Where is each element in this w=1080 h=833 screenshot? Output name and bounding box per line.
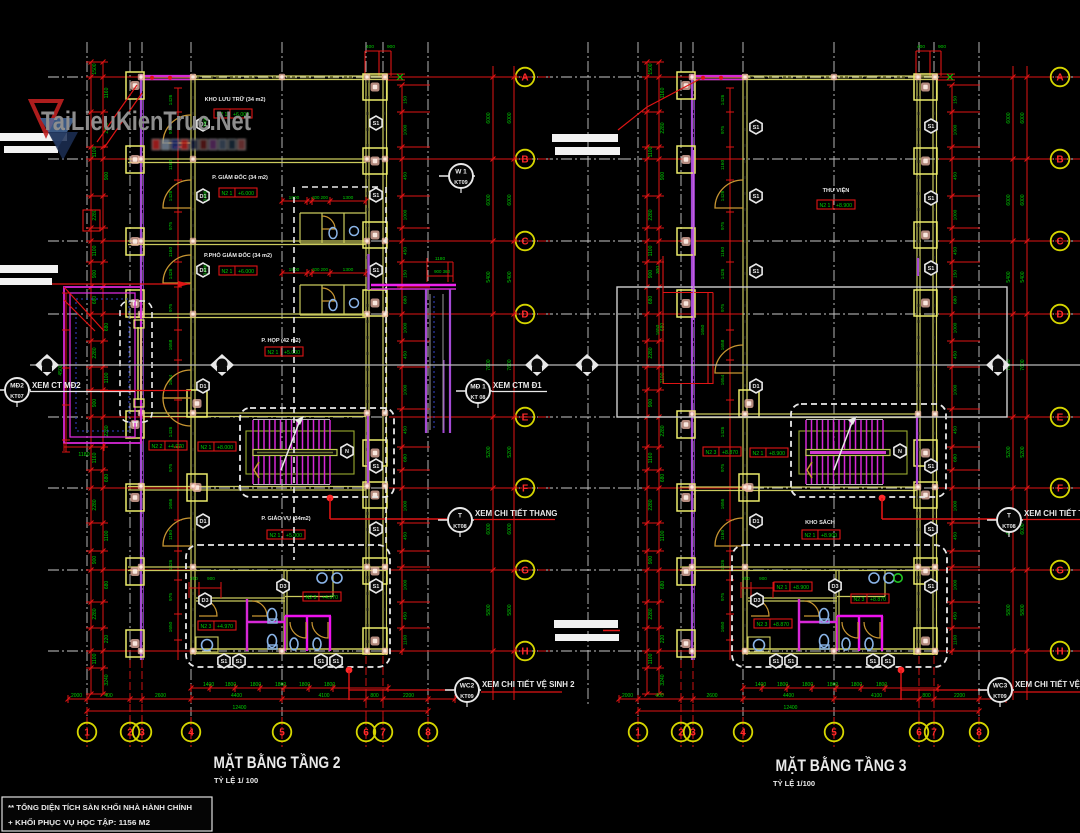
svg-text:1800: 1800 xyxy=(827,682,838,688)
svg-text:200 200: 200 200 xyxy=(312,267,328,272)
svg-text:N2 3: N2 3 xyxy=(200,624,211,630)
svg-text:450: 450 xyxy=(403,612,409,620)
svg-text:XEM CHI TIẾT VỆ S: XEM CHI TIẾT VỆ S xyxy=(1015,679,1080,689)
svg-text:W 1: W 1 xyxy=(455,169,467,176)
svg-text:680: 680 xyxy=(660,474,666,483)
svg-text:D1: D1 xyxy=(199,519,206,525)
svg-text:900: 900 xyxy=(660,172,666,181)
svg-text:S1: S1 xyxy=(373,527,380,533)
svg-text:KT09: KT09 xyxy=(993,694,1006,700)
svg-text:6: 6 xyxy=(916,727,922,738)
svg-text:S1: S1 xyxy=(221,659,228,665)
svg-text:1160: 1160 xyxy=(720,247,726,258)
svg-text:1426: 1426 xyxy=(168,559,174,570)
svg-text:3406: 3406 xyxy=(203,190,209,201)
svg-text:1656: 1656 xyxy=(720,498,726,509)
svg-text:KT07: KT07 xyxy=(10,394,23,400)
svg-text:D3: D3 xyxy=(753,598,760,604)
svg-text:2600: 2600 xyxy=(155,693,166,699)
svg-text:T: T xyxy=(1007,513,1011,520)
svg-text:S1: S1 xyxy=(928,266,935,272)
svg-text:3: 3 xyxy=(690,727,696,738)
svg-text:1426: 1426 xyxy=(168,190,174,201)
svg-text:975: 975 xyxy=(168,304,174,312)
svg-text:+6.000: +6.000 xyxy=(238,191,254,197)
svg-text:400: 400 xyxy=(366,44,374,50)
svg-text:680: 680 xyxy=(953,296,959,304)
svg-text:2280: 2280 xyxy=(92,347,98,358)
svg-text:S1: S1 xyxy=(236,659,243,665)
svg-text:N2 1: N2 1 xyxy=(221,269,232,275)
svg-text:1160: 1160 xyxy=(104,87,110,98)
svg-text:2280: 2280 xyxy=(648,608,654,619)
svg-text:800: 800 xyxy=(370,693,379,699)
svg-text:6000: 6000 xyxy=(507,112,513,123)
svg-text:D1: D1 xyxy=(199,384,206,390)
svg-text:1000: 1000 xyxy=(953,500,959,511)
svg-text:150: 150 xyxy=(403,270,409,278)
svg-text:+8.900: +8.900 xyxy=(821,533,837,539)
svg-text:3406: 3406 xyxy=(203,264,209,275)
svg-text:450: 450 xyxy=(403,351,409,359)
svg-text:S1: S1 xyxy=(373,464,380,470)
svg-text:900: 900 xyxy=(92,270,98,279)
svg-text:680: 680 xyxy=(403,296,409,304)
svg-text:B: B xyxy=(1056,154,1063,165)
svg-text:S1: S1 xyxy=(373,193,380,199)
svg-text:MẶT BẰNG TẦNG 3: MẶT BẰNG TẦNG 3 xyxy=(776,756,907,775)
svg-text:D3: D3 xyxy=(279,584,286,590)
svg-text:D: D xyxy=(1056,309,1063,320)
svg-text:7: 7 xyxy=(380,727,386,738)
svg-text:N: N xyxy=(345,449,349,455)
svg-text:5400: 5400 xyxy=(507,271,513,282)
svg-text:1160: 1160 xyxy=(168,247,174,258)
svg-text:TỶ LỆ 1/100: TỶ LỆ 1/100 xyxy=(773,779,815,788)
svg-text:4400: 4400 xyxy=(231,693,242,699)
svg-text:7: 7 xyxy=(931,727,937,738)
svg-text:450: 450 xyxy=(953,426,959,434)
svg-text:S1: S1 xyxy=(928,527,935,533)
svg-text:S1: S1 xyxy=(885,659,892,665)
svg-text:H: H xyxy=(1056,646,1063,657)
svg-text:975: 975 xyxy=(168,464,174,472)
svg-text:1650: 1650 xyxy=(720,621,726,632)
svg-text:1100: 1100 xyxy=(953,635,959,646)
svg-text:E: E xyxy=(1057,412,1064,423)
svg-text:900 360: 900 360 xyxy=(434,269,450,274)
svg-text:1100: 1100 xyxy=(104,372,110,383)
svg-text:6000: 6000 xyxy=(486,112,492,123)
svg-text:12400: 12400 xyxy=(784,705,798,711)
svg-text:220: 220 xyxy=(660,635,666,644)
svg-text:+8.900: +8.900 xyxy=(793,585,809,591)
svg-text:1000: 1000 xyxy=(953,209,959,220)
svg-text:XEM CHI TIẾT THANG: XEM CHI TIẾT THANG xyxy=(475,508,557,518)
svg-text:6000: 6000 xyxy=(1020,112,1026,123)
svg-text:KT09: KT09 xyxy=(454,180,467,186)
svg-text:5: 5 xyxy=(279,727,285,738)
svg-text:4500: 4500 xyxy=(58,364,64,375)
svg-text:5400: 5400 xyxy=(1020,271,1026,282)
svg-text:220: 220 xyxy=(104,635,110,644)
svg-text:680: 680 xyxy=(660,581,666,590)
svg-text:900: 900 xyxy=(759,576,767,581)
svg-text:S1: S1 xyxy=(773,659,780,665)
svg-text:1000: 1000 xyxy=(953,579,959,590)
svg-text:1400: 1400 xyxy=(755,682,766,688)
svg-text:+5.000: +5.000 xyxy=(284,350,300,356)
svg-text:1100: 1100 xyxy=(648,653,654,664)
svg-text:1160: 1160 xyxy=(720,530,726,541)
svg-text:P. GIÁO VỤ (34m2): P. GIÁO VỤ (34m2) xyxy=(261,515,310,522)
svg-text:975: 975 xyxy=(720,126,726,134)
svg-text:F: F xyxy=(522,483,528,494)
svg-text:2200: 2200 xyxy=(403,693,414,699)
svg-text:G: G xyxy=(521,565,529,576)
svg-text:S1: S1 xyxy=(373,121,380,127)
svg-text:+6.000: +6.000 xyxy=(238,269,254,275)
svg-text:XEM CHI TIẾT T: XEM CHI TIẾT T xyxy=(1024,508,1080,518)
svg-text:MĐ 1: MĐ 1 xyxy=(470,384,486,391)
svg-text:1000: 1000 xyxy=(403,322,409,333)
svg-text:900: 900 xyxy=(938,44,946,50)
svg-text:975: 975 xyxy=(168,593,174,601)
svg-text:6000: 6000 xyxy=(1006,194,1012,205)
svg-text:E: E xyxy=(522,412,529,423)
svg-text:TaiLieuKienTruc.Net: TaiLieuKienTruc.Net xyxy=(41,106,251,136)
svg-text:N2 1: N2 1 xyxy=(819,203,830,209)
svg-text:KT 08: KT 08 xyxy=(471,395,486,401)
svg-text:680: 680 xyxy=(104,323,110,332)
svg-text:1160: 1160 xyxy=(648,452,654,463)
svg-text:S1: S1 xyxy=(318,659,325,665)
svg-text:F: F xyxy=(1057,483,1063,494)
svg-text:KHO LƯU TRỮ (34 m2): KHO LƯU TRỮ (34 m2) xyxy=(205,96,266,103)
svg-text:S1: S1 xyxy=(870,659,877,665)
svg-text:WC2: WC2 xyxy=(460,683,475,690)
svg-text:5800: 5800 xyxy=(1006,604,1012,615)
svg-text:1000: 1000 xyxy=(403,384,409,395)
svg-text:900: 900 xyxy=(207,576,215,581)
svg-text:1300: 1300 xyxy=(343,195,354,201)
svg-text:N2 3: N2 3 xyxy=(705,450,716,456)
svg-text:5400: 5400 xyxy=(486,271,492,282)
svg-text:2280: 2280 xyxy=(92,499,98,510)
svg-text:680: 680 xyxy=(104,474,110,483)
svg-text:1650: 1650 xyxy=(700,324,706,335)
svg-text:680: 680 xyxy=(92,296,98,305)
svg-text:4: 4 xyxy=(188,727,194,738)
svg-text:450: 450 xyxy=(403,532,409,540)
svg-text:P.PHÓ GIÁM ĐỐC (34 m2): P.PHÓ GIÁM ĐỐC (34 m2) xyxy=(204,251,272,259)
svg-text:6000: 6000 xyxy=(507,523,513,534)
svg-text:2280: 2280 xyxy=(648,499,654,510)
svg-text:1800: 1800 xyxy=(225,682,236,688)
svg-text:N2 1: N2 1 xyxy=(752,451,763,457)
svg-text:1100: 1100 xyxy=(648,245,654,256)
svg-text:S1: S1 xyxy=(928,124,935,130)
svg-text:4: 4 xyxy=(740,727,746,738)
svg-text:12400: 12400 xyxy=(233,705,247,711)
svg-text:S1: S1 xyxy=(928,196,935,202)
svg-text:1160: 1160 xyxy=(168,160,174,171)
svg-text:1800: 1800 xyxy=(250,682,261,688)
svg-text:N2 1: N2 1 xyxy=(269,533,280,539)
svg-text:680: 680 xyxy=(648,296,654,305)
svg-text:S1: S1 xyxy=(928,464,935,470)
svg-text:150: 150 xyxy=(953,270,959,278)
svg-text:N2 3: N2 3 xyxy=(853,597,864,603)
svg-text:1: 1 xyxy=(635,727,641,738)
svg-text:+8.900: +8.900 xyxy=(769,451,785,457)
svg-text:N: N xyxy=(898,449,902,455)
svg-text:4100: 4100 xyxy=(318,693,329,699)
svg-text:900: 900 xyxy=(387,44,395,50)
svg-text:450: 450 xyxy=(403,172,409,180)
svg-text:1000: 1000 xyxy=(403,124,409,135)
svg-text:1800: 1800 xyxy=(324,682,335,688)
svg-text:1650: 1650 xyxy=(655,324,661,335)
svg-text:N2 2: N2 2 xyxy=(151,444,162,450)
svg-text:1300: 1300 xyxy=(343,267,354,273)
svg-text:450: 450 xyxy=(403,426,409,434)
svg-text:A: A xyxy=(1056,72,1063,83)
svg-text:2280: 2280 xyxy=(92,608,98,619)
svg-text:N2 3: N2 3 xyxy=(756,622,767,628)
svg-text:KT09: KT09 xyxy=(460,694,473,700)
svg-text:2280: 2280 xyxy=(92,209,98,220)
svg-text:400: 400 xyxy=(104,693,113,699)
svg-text:1160: 1160 xyxy=(660,87,666,98)
svg-text:KT08: KT08 xyxy=(1002,524,1015,530)
svg-text:1000: 1000 xyxy=(953,124,959,135)
svg-text:1100: 1100 xyxy=(92,653,98,664)
svg-text:+4.970: +4.970 xyxy=(322,595,338,601)
svg-text:N2 1: N2 1 xyxy=(221,191,232,197)
svg-text:2280: 2280 xyxy=(648,347,654,358)
svg-text:C: C xyxy=(1056,236,1063,247)
svg-text:1800: 1800 xyxy=(777,682,788,688)
svg-text:P. HỌP (42 m2): P. HỌP (42 m2) xyxy=(261,338,300,344)
svg-text:S1: S1 xyxy=(753,269,760,275)
svg-text:5200: 5200 xyxy=(507,446,513,457)
svg-text:G: G xyxy=(1056,565,1064,576)
svg-text:5800: 5800 xyxy=(507,604,513,615)
svg-text:1426: 1426 xyxy=(720,94,726,105)
svg-text:+4.970: +4.970 xyxy=(217,624,233,630)
svg-text:D: D xyxy=(521,309,528,320)
svg-text:N2 1: N2 1 xyxy=(804,533,815,539)
svg-text:1426: 1426 xyxy=(720,559,726,570)
svg-text:KHO SÁCH: KHO SÁCH xyxy=(805,519,835,526)
svg-text:2280: 2280 xyxy=(660,122,666,133)
svg-text:S1: S1 xyxy=(753,125,760,131)
svg-text:1800: 1800 xyxy=(876,682,887,688)
svg-text:8: 8 xyxy=(976,727,982,738)
svg-text:5: 5 xyxy=(831,727,837,738)
svg-text:5200: 5200 xyxy=(1006,446,1012,457)
svg-text:S1: S1 xyxy=(333,659,340,665)
svg-text:T: T xyxy=(458,513,462,520)
svg-text:400: 400 xyxy=(917,44,925,50)
svg-text:KT08: KT08 xyxy=(453,524,466,530)
svg-text:5400: 5400 xyxy=(1006,271,1012,282)
svg-text:4400: 4400 xyxy=(783,693,794,699)
svg-text:S1: S1 xyxy=(788,659,795,665)
svg-text:1654: 1654 xyxy=(720,374,726,385)
svg-text:XEM CT MĐ2: XEM CT MĐ2 xyxy=(32,381,81,390)
svg-text:1100: 1100 xyxy=(104,530,110,541)
svg-text:2280: 2280 xyxy=(660,425,666,436)
svg-text:1658: 1658 xyxy=(720,339,726,350)
svg-text:1426: 1426 xyxy=(168,268,174,279)
svg-text:1500: 1500 xyxy=(92,63,98,74)
svg-text:150: 150 xyxy=(953,96,959,104)
svg-text:N2 1: N2 1 xyxy=(776,585,787,591)
svg-text:S1: S1 xyxy=(373,268,380,274)
svg-text:450: 450 xyxy=(953,351,959,359)
svg-text:P. GIÁM ĐỐC (34 m2): P. GIÁM ĐỐC (34 m2) xyxy=(212,174,268,181)
svg-text:400: 400 xyxy=(655,693,664,699)
svg-text:1426: 1426 xyxy=(168,94,174,105)
svg-text:450: 450 xyxy=(953,532,959,540)
svg-text:300: 300 xyxy=(655,266,661,274)
svg-text:+8.870: +8.870 xyxy=(773,622,789,628)
svg-text:1000: 1000 xyxy=(953,384,959,395)
svg-text:1426: 1426 xyxy=(720,268,726,279)
svg-text:2000: 2000 xyxy=(71,693,82,699)
svg-text:900: 900 xyxy=(648,399,654,408)
svg-text:1100: 1100 xyxy=(660,530,666,541)
svg-text:D1: D1 xyxy=(752,519,759,525)
svg-text:450: 450 xyxy=(403,247,409,255)
svg-text:MĐ2: MĐ2 xyxy=(10,383,24,390)
svg-text:1500: 1500 xyxy=(648,63,654,74)
svg-text:5200: 5200 xyxy=(486,446,492,457)
svg-text:2280: 2280 xyxy=(648,209,654,220)
svg-text:+4.970: +4.970 xyxy=(168,444,184,450)
svg-text:1426: 1426 xyxy=(720,426,726,437)
svg-text:1800: 1800 xyxy=(802,682,813,688)
svg-text:N2 1: N2 1 xyxy=(267,350,278,356)
svg-text:1000: 1000 xyxy=(403,209,409,220)
svg-text:S1: S1 xyxy=(753,194,760,200)
svg-text:900: 900 xyxy=(648,556,654,565)
svg-text:TỶ LỆ 1/ 100: TỶ LỆ 1/ 100 xyxy=(214,776,258,785)
svg-text:1100: 1100 xyxy=(648,146,654,157)
svg-text:1180: 1180 xyxy=(435,256,446,262)
svg-text:+8.000: +8.000 xyxy=(217,445,233,451)
svg-text:S1: S1 xyxy=(928,584,935,590)
svg-text:WC3: WC3 xyxy=(993,683,1008,690)
svg-text:6000: 6000 xyxy=(486,194,492,205)
svg-text:+8.870: +8.870 xyxy=(870,597,886,603)
svg-text:900: 900 xyxy=(104,172,110,181)
svg-text:6000: 6000 xyxy=(1020,194,1026,205)
svg-text:1: 1 xyxy=(84,727,90,738)
svg-text:B: B xyxy=(521,154,528,165)
svg-text:450: 450 xyxy=(953,612,959,620)
svg-text:D3: D3 xyxy=(831,584,838,590)
svg-text:1000: 1000 xyxy=(403,500,409,511)
svg-text:450: 450 xyxy=(953,247,959,255)
svg-text:N2 3: N2 3 xyxy=(305,595,316,601)
svg-text:975: 975 xyxy=(720,593,726,601)
svg-text:XEM CHI TIẾT VỆ SINH 2: XEM CHI TIẾT VỆ SINH 2 xyxy=(482,679,575,689)
svg-text:A: A xyxy=(521,72,528,83)
svg-text:+8.870: +8.870 xyxy=(722,450,738,456)
svg-text:680: 680 xyxy=(953,454,959,462)
svg-text:THƯ VIỆN: THƯ VIỆN xyxy=(823,186,850,194)
svg-text:6000: 6000 xyxy=(486,523,492,534)
svg-text:1000: 1000 xyxy=(953,322,959,333)
svg-text:800: 800 xyxy=(922,693,931,699)
svg-text:S1: S1 xyxy=(373,584,380,590)
svg-text:975: 975 xyxy=(720,304,726,312)
svg-text:+ KHỐI PHỤC VỤ HỌC TẬP: 1156 M: + KHỐI PHỤC VỤ HỌC TẬP: 1156 M2 xyxy=(8,817,150,827)
svg-text:1100: 1100 xyxy=(403,635,409,646)
svg-text:2200: 2200 xyxy=(954,693,965,699)
svg-text:1800: 1800 xyxy=(851,682,862,688)
svg-text:1000: 1000 xyxy=(403,579,409,590)
svg-text:1426: 1426 xyxy=(168,426,174,437)
svg-text:450: 450 xyxy=(953,172,959,180)
svg-text:400: 400 xyxy=(190,576,198,581)
svg-text:1400: 1400 xyxy=(203,682,214,688)
svg-text:680: 680 xyxy=(104,581,110,590)
svg-text:1100: 1100 xyxy=(92,146,98,157)
svg-text:5200: 5200 xyxy=(1020,446,1026,457)
svg-text:H: H xyxy=(521,646,528,657)
svg-text:8: 8 xyxy=(425,727,431,738)
svg-text:1658: 1658 xyxy=(168,339,174,350)
svg-text:4100: 4100 xyxy=(871,693,882,699)
svg-text:5800: 5800 xyxy=(486,604,492,615)
svg-text:680: 680 xyxy=(403,454,409,462)
svg-text:1100: 1100 xyxy=(92,245,98,256)
svg-text:MẶT BẰNG TẦNG 2: MẶT BẰNG TẦNG 2 xyxy=(214,753,341,772)
svg-text:1656: 1656 xyxy=(168,498,174,509)
svg-text:900: 900 xyxy=(92,556,98,565)
svg-text:3240: 3240 xyxy=(104,674,110,685)
svg-text:2000: 2000 xyxy=(622,693,633,699)
svg-text:+8.900: +8.900 xyxy=(836,203,852,209)
svg-text:5800: 5800 xyxy=(1020,604,1026,615)
svg-text:XEM CTM Đ1: XEM CTM Đ1 xyxy=(493,381,542,390)
svg-text:1800: 1800 xyxy=(299,682,310,688)
svg-text:1180: 1180 xyxy=(78,452,89,458)
svg-text:1650: 1650 xyxy=(168,621,174,632)
svg-text:6000: 6000 xyxy=(507,194,513,205)
svg-text:D1: D1 xyxy=(752,384,759,390)
svg-text:1800: 1800 xyxy=(275,682,286,688)
svg-text:6: 6 xyxy=(363,727,369,738)
svg-text:1160: 1160 xyxy=(92,452,98,463)
svg-text:200 200: 200 200 xyxy=(312,195,328,200)
svg-text:975: 975 xyxy=(168,222,174,230)
svg-text:900: 900 xyxy=(648,270,654,279)
svg-text:3240: 3240 xyxy=(660,674,666,685)
svg-text:2600: 2600 xyxy=(706,693,717,699)
svg-text:150: 150 xyxy=(403,96,409,104)
svg-text:** TỔNG DIỆN TÍCH SÀN KHỐI NHÀ: ** TỔNG DIỆN TÍCH SÀN KHỐI NHÀ HÀNH CHÍN… xyxy=(8,802,192,812)
svg-text:975: 975 xyxy=(720,222,726,230)
svg-text:400: 400 xyxy=(742,576,750,581)
svg-text:1160: 1160 xyxy=(168,530,174,541)
svg-text:1426: 1426 xyxy=(720,190,726,201)
svg-text:C: C xyxy=(521,236,528,247)
